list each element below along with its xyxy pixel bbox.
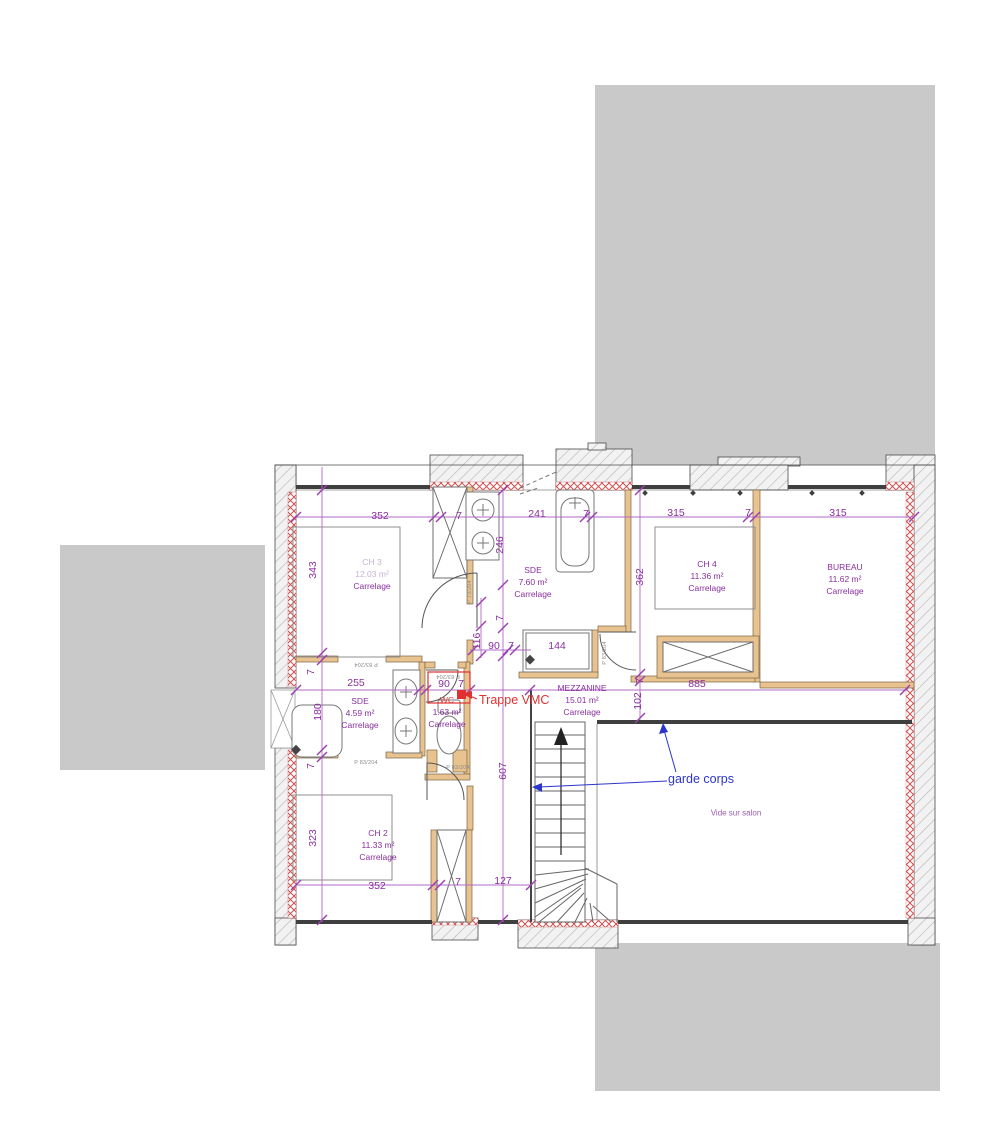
window-left-wall: [271, 690, 295, 748]
closet-hall-top: [433, 487, 467, 578]
closet-ch4: [663, 642, 753, 672]
railings: [597, 720, 912, 924]
furniture: [291, 487, 755, 922]
bed-ch3: [293, 527, 400, 657]
window-hall: [478, 920, 518, 924]
bathtub: [556, 490, 594, 572]
partition-walls: [296, 487, 914, 922]
window-bureau: [788, 485, 886, 489]
shower-sde-small: [291, 705, 342, 757]
floor-plan-page: Trappe VMC garde corps Vide sur salon CH…: [0, 0, 1000, 1121]
railing-bottom: [618, 920, 908, 924]
double-washbasin: [466, 492, 499, 560]
roof-mass-left: [60, 545, 265, 770]
shower-sde-top: [523, 630, 592, 672]
exterior-walls: [275, 443, 935, 948]
wall-red-lining: [288, 482, 914, 927]
dimension-ticks: [291, 485, 919, 925]
closet-hall-bottom: [437, 830, 466, 922]
railing-top: [597, 720, 912, 724]
dimension-lines: [296, 467, 914, 922]
door-ch4: [599, 632, 636, 670]
window-ch2: [296, 920, 432, 924]
floor-plan-drawing: [0, 0, 1000, 1121]
roof-mass-top-right: [595, 85, 935, 465]
window-ch3: [296, 485, 430, 489]
toilet: [437, 700, 461, 754]
stairs: [531, 690, 617, 922]
bed-ch4: [655, 527, 755, 609]
vanity-sde-small: [393, 670, 420, 753]
skylight-dashed: [520, 472, 556, 494]
roof-mass-bottom-right: [595, 943, 940, 1091]
bed-ch2: [293, 795, 392, 880]
